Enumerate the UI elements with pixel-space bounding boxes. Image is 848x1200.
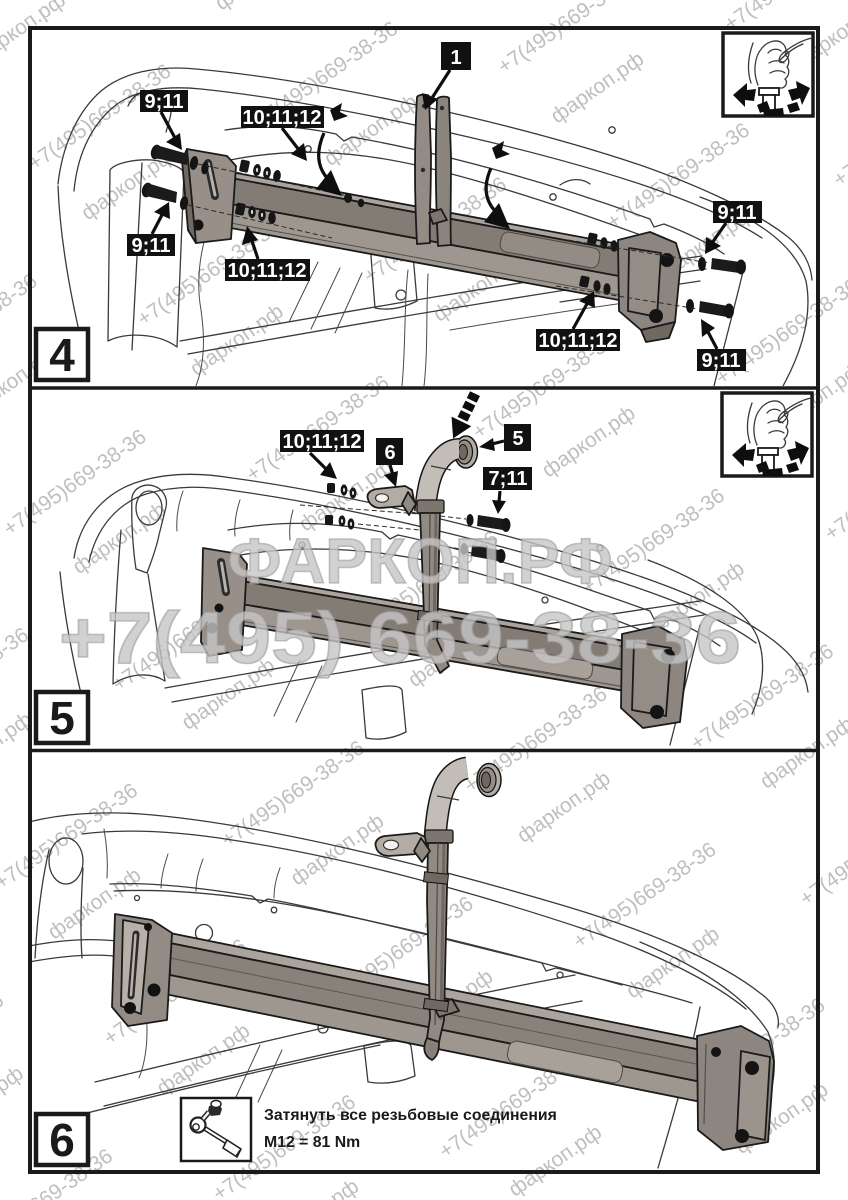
svg-text:9;11: 9;11 bbox=[132, 235, 171, 257]
svg-text:9;11: 9;11 bbox=[145, 91, 184, 113]
svg-text:Затянуть все резьбовые соедине: Затянуть все резьбовые соединения bbox=[264, 1107, 557, 1124]
svg-text:М12 = 81 Nm: М12 = 81 Nm bbox=[264, 1134, 360, 1151]
svg-text:1: 1 bbox=[450, 47, 461, 69]
svg-text:+7(495) 669-38-36: +7(495) 669-38-36 bbox=[59, 598, 741, 679]
svg-text:5: 5 bbox=[49, 692, 75, 744]
svg-text:6: 6 bbox=[384, 442, 395, 464]
svg-text:7;11: 7;11 bbox=[489, 468, 528, 490]
svg-text:9;11: 9;11 bbox=[702, 350, 741, 372]
svg-text:5: 5 bbox=[512, 428, 523, 450]
svg-text:ФАРКОП.РФ: ФАРКОП.РФ bbox=[228, 525, 613, 597]
svg-text:6: 6 bbox=[49, 1114, 75, 1166]
svg-text:4: 4 bbox=[49, 329, 75, 381]
svg-text:10;11;12: 10;11;12 bbox=[243, 107, 322, 129]
svg-text:10;11;12: 10;11;12 bbox=[539, 330, 618, 352]
svg-text:10;11;12: 10;11;12 bbox=[283, 431, 362, 453]
svg-text:9;11: 9;11 bbox=[718, 202, 757, 224]
svg-text:10;11;12: 10;11;12 bbox=[228, 260, 307, 282]
